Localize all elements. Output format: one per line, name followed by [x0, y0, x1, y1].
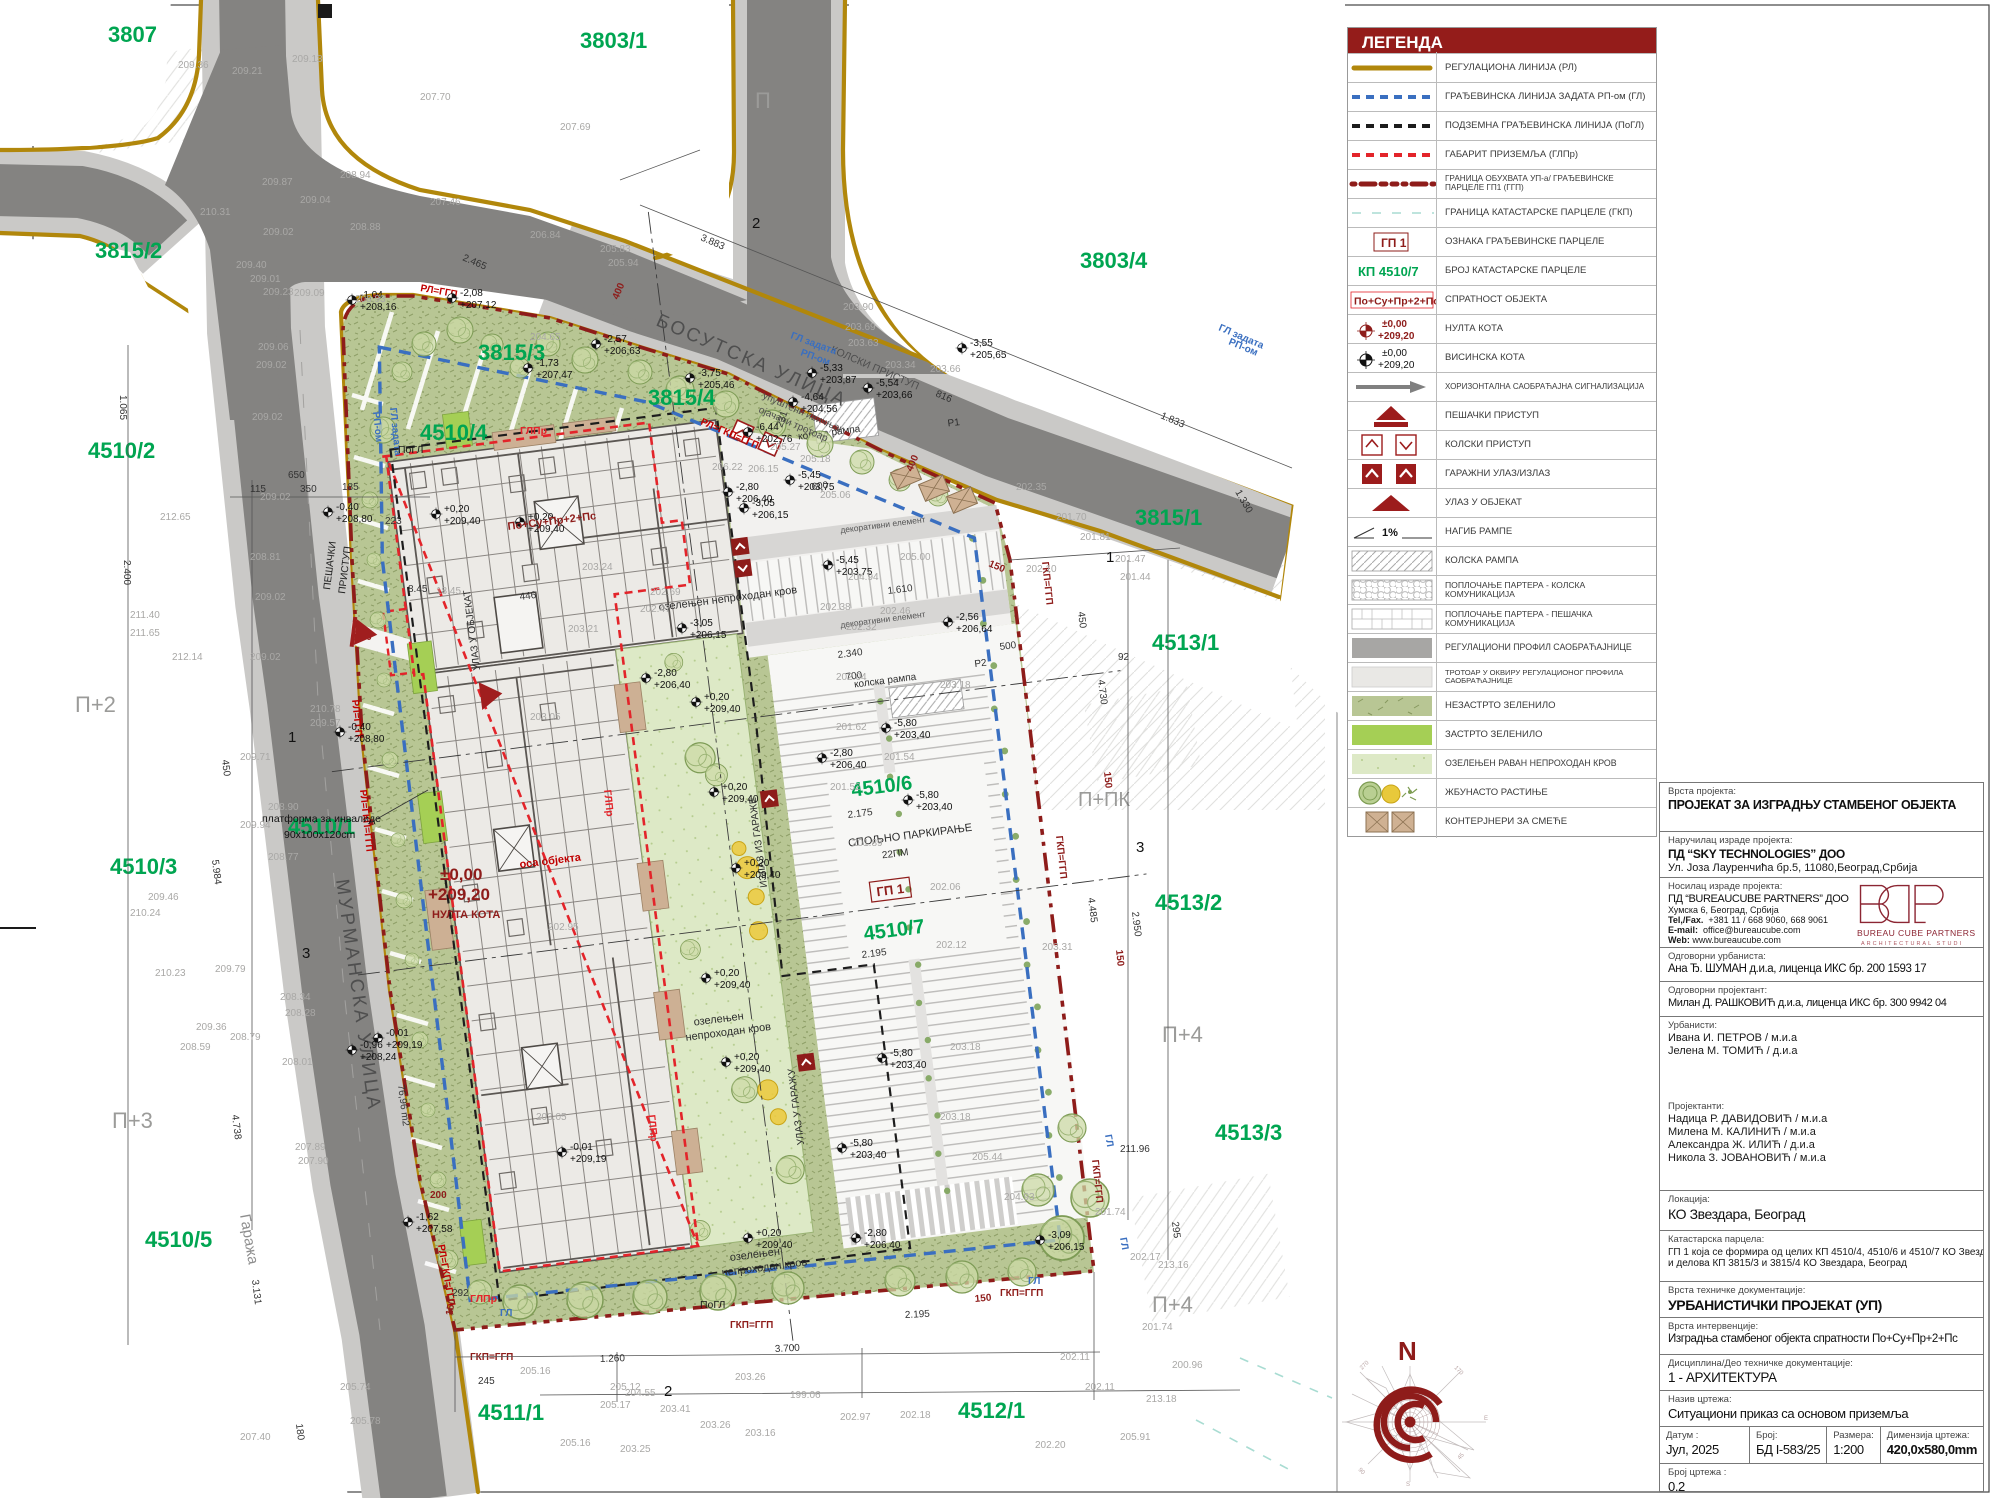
svg-text:209.36: 209.36	[178, 60, 209, 71]
svg-text:245: 245	[478, 1376, 495, 1387]
svg-text:+208,24: +208,24	[360, 1052, 397, 1063]
svg-text:П+4: П+4	[1152, 1292, 1193, 1317]
svg-text:203.31: 203.31	[1042, 942, 1073, 953]
svg-text:-5,33: -5,33	[820, 363, 843, 374]
svg-text:+206,40: +206,40	[864, 1240, 901, 1251]
svg-text:213.16: 213.16	[1158, 1260, 1189, 1271]
svg-text:+206,64: +206,64	[956, 624, 993, 635]
svg-text:208.34: 208.34	[280, 992, 311, 1003]
svg-text:292: 292	[452, 1288, 469, 1299]
svg-text:+0,20: +0,20	[722, 782, 748, 793]
svg-text:202.95: 202.95	[548, 922, 579, 933]
svg-text:+206,63: +206,63	[604, 346, 641, 357]
svg-text:2: 2	[752, 215, 760, 232]
svg-text:202.10: 202.10	[1026, 564, 1057, 575]
svg-text:ГКП=ГГП: ГКП=ГГП	[730, 1320, 773, 1331]
svg-text:2: 2	[664, 1383, 672, 1400]
svg-text:205.78: 205.78	[350, 1416, 381, 1427]
svg-text:150: 150	[974, 1293, 992, 1305]
svg-text:-2,80: -2,80	[736, 482, 759, 493]
svg-text:-2,56: -2,56	[956, 612, 979, 623]
svg-text:500: 500	[999, 640, 1017, 653]
svg-text:П+ПК: П+ПК	[1078, 789, 1130, 811]
svg-text:-5,45: -5,45	[798, 470, 821, 481]
svg-text:203.63: 203.63	[848, 338, 879, 349]
svg-text:+0,20: +0,20	[744, 858, 770, 869]
svg-text:4510/5: 4510/5	[145, 1227, 212, 1252]
svg-text:-5,80: -5,80	[890, 1048, 913, 1059]
svg-text:209.87: 209.87	[262, 177, 293, 188]
svg-text:-5,45: -5,45	[836, 555, 859, 566]
svg-text:±0,00: ±0,00	[1382, 348, 1407, 359]
svg-text:446: 446	[519, 590, 537, 603]
svg-text:203.16: 203.16	[745, 1428, 776, 1439]
svg-text:-5,80: -5,80	[916, 790, 939, 801]
svg-text:209.02: 209.02	[255, 592, 286, 603]
svg-text:N: N	[1398, 1336, 1417, 1366]
svg-text:-5,80: -5,80	[894, 718, 917, 729]
svg-text:+204,56: +204,56	[801, 404, 838, 415]
svg-text:209.02: 209.02	[252, 412, 283, 423]
svg-text:1: 1	[288, 729, 296, 746]
svg-text:3803/4: 3803/4	[1080, 248, 1148, 273]
svg-text:202.97: 202.97	[840, 1412, 871, 1423]
svg-text:4513/3: 4513/3	[1215, 1120, 1282, 1145]
svg-text:209.01: 209.01	[250, 274, 281, 285]
svg-text:209.02: 209.02	[263, 227, 294, 238]
svg-text:208.90: 208.90	[268, 802, 299, 813]
svg-text:210.31: 210.31	[200, 207, 231, 218]
svg-text:206.84: 206.84	[530, 230, 561, 241]
svg-text:+205,46: +205,46	[698, 380, 735, 391]
svg-text:209.02: 209.02	[256, 360, 287, 371]
svg-text:BUREAU CUBE PARTNERS: BUREAU CUBE PARTNERS	[1857, 928, 1975, 938]
svg-text:платформа за инвалиде: платформа за инвалиде	[262, 813, 381, 825]
svg-text:ГЛ: ГЛ	[1028, 1276, 1040, 1287]
svg-text:+206,15: +206,15	[752, 510, 789, 521]
svg-text:Р1: Р1	[947, 417, 961, 430]
svg-text:205.27: 205.27	[770, 442, 801, 453]
svg-text:203.05: 203.05	[530, 712, 561, 723]
svg-text:450: 450	[219, 759, 232, 777]
svg-text:203.21: 203.21	[568, 624, 599, 635]
svg-text:180: 180	[293, 1423, 306, 1441]
svg-text:П+3: П+3	[112, 1108, 153, 1133]
svg-text:По+Су+Пр+2+Пс: По+Су+Пр+2+Пс	[1354, 296, 1436, 308]
svg-text:207.40: 207.40	[240, 1432, 271, 1443]
svg-text:+209,20: +209,20	[428, 885, 490, 904]
svg-text:208.77: 208.77	[268, 852, 299, 863]
svg-text:+206,40: +206,40	[830, 760, 867, 771]
svg-text:207.90: 207.90	[298, 1156, 329, 1167]
svg-text:150: 150	[1113, 949, 1126, 967]
svg-text:209.79: 209.79	[215, 964, 246, 975]
svg-text:1.065: 1.065	[117, 395, 128, 420]
svg-text:202.11: 202.11	[1085, 1382, 1115, 1393]
svg-text:S: S	[1406, 1482, 1410, 1488]
svg-text:209.71: 209.71	[240, 752, 271, 763]
svg-text:-0,40: -0,40	[348, 722, 371, 733]
svg-text:+203,40: +203,40	[916, 802, 953, 813]
svg-text:202.20: 202.20	[1035, 1440, 1066, 1451]
svg-text:4513/2: 4513/2	[1155, 890, 1222, 915]
svg-text:+207,58: +207,58	[416, 1224, 453, 1235]
svg-text:+0,20: +0,20	[734, 1052, 760, 1063]
svg-text:90x100x120cm: 90x100x120cm	[284, 829, 355, 841]
svg-text:209.02: 209.02	[260, 492, 291, 503]
svg-text:208.81: 208.81	[250, 552, 281, 563]
svg-text:+209,40: +209,40	[734, 1064, 771, 1075]
svg-text:209.23: 209.23	[263, 287, 294, 298]
svg-text:213.18: 213.18	[1146, 1394, 1177, 1405]
svg-text:-2,57: -2,57	[604, 334, 627, 345]
svg-text:202.18: 202.18	[900, 1410, 931, 1421]
svg-text:204.55: 204.55	[625, 1388, 656, 1399]
svg-text:18.45: 18.45	[436, 586, 461, 597]
svg-text:202.46: 202.46	[880, 606, 911, 617]
svg-text:4510/3: 4510/3	[110, 854, 177, 879]
svg-text:±0,00: ±0,00	[440, 865, 482, 884]
svg-text:209.06: 209.06	[258, 342, 289, 353]
svg-text:ГЛПр: ГЛПр	[470, 1293, 497, 1305]
svg-text:П: П	[755, 88, 771, 113]
svg-text:+206,15: +206,15	[690, 630, 727, 641]
svg-text:202.32: 202.32	[846, 622, 877, 633]
svg-text:201.70: 201.70	[1056, 512, 1087, 523]
svg-text:+206,40: +206,40	[654, 680, 691, 691]
svg-text:3: 3	[302, 945, 310, 962]
svg-text:203.66: 203.66	[930, 364, 961, 375]
svg-text:3815/1: 3815/1	[1135, 505, 1202, 530]
svg-text:200.96: 200.96	[1172, 1360, 1203, 1371]
svg-text:1.260: 1.260	[600, 1353, 626, 1365]
svg-text:209.09: 209.09	[294, 288, 325, 299]
svg-text:-2,80: -2,80	[830, 748, 853, 759]
svg-text:205.16: 205.16	[560, 1438, 591, 1449]
svg-text:-2,80: -2,80	[654, 668, 677, 679]
svg-text:-3,09: -3,09	[1048, 1230, 1071, 1241]
svg-text:208.28: 208.28	[285, 1008, 316, 1019]
svg-text:212.65: 212.65	[160, 512, 191, 523]
svg-text:3: 3	[1136, 839, 1144, 856]
svg-text:2.400: 2.400	[121, 560, 132, 585]
svg-text:202.69: 202.69	[650, 587, 681, 598]
svg-text:270: 270	[1359, 1360, 1371, 1372]
svg-text:209.21: 209.21	[232, 66, 263, 77]
svg-text:450: 450	[1075, 611, 1088, 629]
svg-text:206.15: 206.15	[748, 464, 779, 475]
svg-text:ГП 1: ГП 1	[1381, 236, 1407, 250]
svg-text:+203,66: +203,66	[876, 390, 913, 401]
svg-text:208.79: 208.79	[230, 1032, 261, 1043]
svg-text:ARCHITECTURAL STUDI: ARCHITECTURAL STUDI	[1861, 941, 1963, 946]
svg-text:+0,20: +0,20	[756, 1228, 782, 1239]
svg-text:205.00: 205.00	[900, 552, 931, 563]
svg-text:+209,20: +209,20	[1378, 360, 1415, 371]
svg-text:209.40: 209.40	[236, 260, 267, 271]
svg-text:+209,20: +209,20	[1378, 331, 1415, 342]
svg-text:ГКП=ГГП: ГКП=ГГП	[1000, 1288, 1043, 1299]
svg-text:ГКП=ГГП: ГКП=ГГП	[470, 1352, 513, 1363]
svg-text:±0,00: ±0,00	[1382, 319, 1407, 330]
svg-text:+209,40: +209,40	[744, 870, 781, 881]
svg-text:8.45: 8.45	[408, 584, 428, 595]
svg-text:209.94: 209.94	[240, 820, 271, 831]
svg-text:4513/1: 4513/1	[1152, 630, 1219, 655]
svg-text:+0,20: +0,20	[714, 968, 740, 979]
svg-text:202.35: 202.35	[1016, 482, 1047, 493]
svg-text:-5,80: -5,80	[850, 1138, 873, 1149]
svg-text:201.44: 201.44	[1120, 572, 1151, 583]
svg-text:ПоГЛ: ПоГЛ	[398, 444, 423, 456]
svg-text:205.83: 205.83	[600, 244, 631, 255]
svg-text:+203,40: +203,40	[850, 1150, 887, 1161]
svg-text:-2,08: -2,08	[460, 288, 483, 299]
svg-text:205.94: 205.94	[608, 258, 639, 269]
svg-text:205.91: 205.91	[1120, 1432, 1151, 1443]
svg-text:206.22: 206.22	[712, 462, 743, 473]
svg-text:1: 1	[1106, 549, 1114, 566]
svg-text:3.700: 3.700	[775, 1343, 801, 1355]
svg-text:202.06: 202.06	[930, 882, 961, 893]
svg-text:45: 45	[1457, 1452, 1466, 1461]
svg-text:+209,40: +209,40	[704, 704, 741, 715]
svg-text:201.54: 201.54	[884, 752, 915, 763]
svg-text:185: 185	[342, 482, 359, 493]
svg-text:205.16: 205.16	[520, 1366, 551, 1377]
svg-text:201.74: 201.74	[1142, 1322, 1173, 1333]
svg-text:202.47: 202.47	[640, 604, 671, 615]
svg-text:350: 350	[300, 484, 317, 495]
svg-text:+209,19: +209,19	[386, 1040, 423, 1051]
svg-text:205.44: 205.44	[972, 1152, 1003, 1163]
svg-text:211.96: 211.96	[1120, 1144, 1150, 1155]
svg-text:208.01: 208.01	[282, 1057, 313, 1068]
svg-text:-3,05: -3,05	[690, 618, 713, 629]
svg-text:203.05: 203.05	[536, 1112, 567, 1123]
svg-text:203.24: 203.24	[582, 562, 613, 573]
svg-text:-0,96: -0,96	[360, 1040, 383, 1051]
svg-text:+208,80: +208,80	[348, 734, 385, 745]
svg-text:205.06: 205.06	[820, 490, 851, 501]
svg-text:201.47: 201.47	[1115, 554, 1146, 565]
svg-text:2.195: 2.195	[905, 1309, 931, 1321]
svg-text:3815/2: 3815/2	[95, 238, 162, 263]
svg-text:170: 170	[1453, 1365, 1465, 1377]
svg-text:207.89: 207.89	[295, 1142, 326, 1153]
svg-text:201.62: 201.62	[836, 722, 867, 733]
svg-text:4510/4: 4510/4	[420, 420, 488, 445]
svg-text:223: 223	[385, 516, 402, 527]
svg-text:202.38: 202.38	[820, 602, 851, 613]
svg-text:-3,75: -3,75	[698, 368, 721, 379]
svg-text:202.11: 202.11	[1060, 1352, 1090, 1363]
svg-text:-4,64: -4,64	[801, 392, 824, 403]
svg-text:203.25: 203.25	[620, 1444, 651, 1455]
svg-text:92: 92	[1118, 652, 1130, 663]
svg-text:203.18: 203.18	[940, 680, 971, 691]
svg-text:199.06: 199.06	[790, 1390, 821, 1401]
svg-text:203.90: 203.90	[843, 302, 874, 313]
svg-text:207.46: 207.46	[430, 197, 461, 208]
svg-text:+209,19: +209,19	[570, 1154, 607, 1165]
svg-text:ПоГЛ: ПоГЛ	[700, 1299, 725, 1311]
svg-text:4511/1: 4511/1	[478, 1400, 544, 1425]
svg-text:+203,40: +203,40	[890, 1060, 927, 1071]
svg-text:204.93: 204.93	[1004, 1192, 1035, 1203]
svg-text:-1,73: -1,73	[536, 358, 559, 369]
svg-text:203.26: 203.26	[700, 1420, 731, 1431]
svg-text:-1,62: -1,62	[416, 1212, 439, 1223]
svg-text:205.18: 205.18	[800, 454, 831, 465]
svg-text:203.26: 203.26	[735, 1372, 766, 1383]
svg-text:204.94: 204.94	[848, 572, 879, 583]
svg-text:E: E	[1484, 1416, 1488, 1422]
svg-text:150: 150	[1101, 771, 1114, 789]
svg-text:+206,15: +206,15	[1048, 1242, 1085, 1253]
svg-text:-0,01: -0,01	[386, 1028, 409, 1039]
svg-text:+207,12: +207,12	[460, 300, 497, 311]
svg-text:-5,54: -5,54	[876, 378, 899, 389]
svg-text:+208,80: +208,80	[336, 514, 373, 525]
svg-text:209.04: 209.04	[300, 195, 331, 206]
svg-text:90: 90	[1357, 1467, 1366, 1476]
svg-text:205.74: 205.74	[340, 1382, 371, 1393]
svg-text:3803/1: 3803/1	[580, 28, 647, 53]
svg-text:201.74: 201.74	[1095, 1207, 1126, 1218]
svg-text:203.41: 203.41	[660, 1404, 691, 1415]
svg-text:207.69: 207.69	[560, 122, 591, 133]
svg-text:202.17: 202.17	[1130, 1252, 1161, 1263]
svg-text:203.18: 203.18	[940, 1112, 971, 1123]
svg-text:208.59: 208.59	[180, 1042, 211, 1053]
svg-text:+203,40: +203,40	[894, 730, 931, 741]
svg-text:+209,40: +209,40	[756, 1240, 793, 1251]
svg-text:209.02: 209.02	[250, 652, 281, 663]
svg-text:4510/2: 4510/2	[88, 438, 155, 463]
svg-text:-0,40: -0,40	[336, 502, 359, 513]
svg-text:208.93: 208.93	[355, 294, 386, 305]
svg-text:ГЛ: ГЛ	[1102, 1134, 1115, 1148]
svg-text:Р2: Р2	[974, 658, 988, 671]
svg-text:650: 650	[288, 470, 305, 481]
svg-text:208.88: 208.88	[350, 222, 381, 233]
svg-text:4512/1: 4512/1	[958, 1398, 1025, 1423]
svg-text:210.24: 210.24	[130, 908, 161, 919]
svg-text:+207,47: +207,47	[536, 370, 573, 381]
svg-text:+0,20: +0,20	[444, 504, 470, 515]
svg-text:211.40: 211.40	[130, 610, 160, 621]
svg-text:209.57: 209.57	[310, 718, 341, 729]
svg-text:ГЛ: ГЛ	[500, 1308, 512, 1319]
svg-text:209.13: 209.13	[292, 54, 323, 65]
svg-text:203.69: 203.69	[845, 322, 876, 333]
svg-text:202.04: 202.04	[836, 672, 867, 683]
svg-text:208.94: 208.94	[340, 170, 371, 181]
svg-text:П+2: П+2	[75, 692, 116, 717]
svg-text:+209,40: +209,40	[444, 516, 481, 527]
svg-text:+203,87: +203,87	[820, 375, 857, 386]
svg-text:201.52: 201.52	[830, 782, 861, 793]
svg-text:201.81: 201.81	[1080, 532, 1111, 543]
svg-text:209.36: 209.36	[196, 1022, 227, 1033]
svg-text:-3,05: -3,05	[752, 498, 775, 509]
svg-text:205.17: 205.17	[600, 1400, 631, 1411]
svg-text:ГЛ: ГЛ	[1117, 1237, 1130, 1251]
svg-text:-0,01: -0,01	[570, 1142, 593, 1153]
svg-text:211.65: 211.65	[130, 628, 160, 639]
svg-text:+209,40: +209,40	[714, 980, 751, 991]
svg-text:212.14: 212.14	[172, 652, 203, 663]
svg-text:-2,80: -2,80	[864, 1228, 887, 1239]
svg-text:203.18: 203.18	[950, 1042, 981, 1053]
svg-text:КП 4510/7: КП 4510/7	[1358, 264, 1419, 279]
svg-text:203.34: 203.34	[885, 360, 916, 371]
svg-text:295: 295	[1169, 1221, 1182, 1239]
svg-text:202.12: 202.12	[936, 940, 967, 951]
svg-text:+205,65: +205,65	[970, 350, 1007, 361]
svg-text:201.89: 201.89	[852, 838, 883, 849]
svg-text:ГЛПр: ГЛПр	[520, 425, 547, 437]
svg-text:+0,20: +0,20	[704, 692, 730, 703]
svg-text:200: 200	[430, 1190, 447, 1201]
svg-text:209.46: 209.46	[148, 892, 179, 903]
svg-text:+209,40: +209,40	[722, 794, 759, 805]
svg-text:207.70: 207.70	[420, 92, 451, 103]
svg-text:НУЛТА КОТА: НУЛТА КОТА	[432, 909, 500, 921]
svg-text:210.78: 210.78	[310, 704, 341, 715]
svg-text:204.65: 204.65	[530, 332, 561, 343]
svg-text:1%: 1%	[1382, 527, 1398, 539]
svg-text:3807: 3807	[108, 22, 157, 47]
svg-text:210.23: 210.23	[155, 968, 186, 979]
